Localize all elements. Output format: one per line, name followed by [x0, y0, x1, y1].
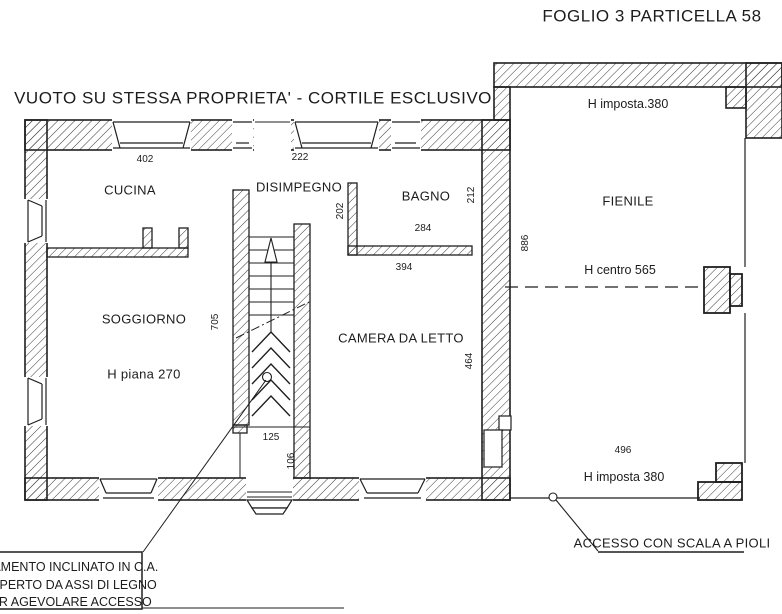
- courtyard-label: VUOTO SU STESSA PROPRIETA' - CORTILE ESC…: [14, 90, 492, 107]
- top-wall-openings: [112, 118, 421, 152]
- dim-fienile-depth: 886: [521, 235, 531, 252]
- note-line-3: PER AGEVOLARE ACCESSO: [0, 595, 152, 609]
- fienile-lines: [505, 138, 745, 498]
- dim-disimpegno-width: 222: [292, 153, 309, 163]
- sheet-title: FOGLIO 3 PARTICELLA 58: [542, 8, 761, 25]
- dim-vestibule-width: 125: [263, 433, 280, 443]
- ramp-leader-anchor: [263, 373, 272, 382]
- room-label-fienile: FIENILE: [602, 195, 653, 208]
- floor-plan-sheet: FOGLIO 3 PARTICELLA 58 VUOTO SU STESSA P…: [0, 0, 782, 614]
- note-line-2: ICOPERTO DA ASSI DI LEGNO: [0, 578, 157, 592]
- dim-camera-depth: 464: [465, 353, 475, 370]
- room-label-soggiorno: SOGGIORNO: [102, 313, 186, 326]
- access-label: ACCESSO CON SCALA A PIOLI: [574, 537, 771, 550]
- room-label-disimpegno: DISIMPEGNO: [256, 181, 342, 194]
- room-label-bagno: BAGNO: [402, 190, 450, 203]
- height-fienile-imposta-top: H imposta.380: [588, 98, 669, 111]
- access-leader-anchor: [549, 493, 557, 501]
- dim-soggiorno-depth: 705: [211, 314, 221, 331]
- entrance-step: [247, 500, 292, 514]
- dim-disimpegno-depth: 202: [336, 203, 346, 220]
- dim-fienile-width: 496: [615, 446, 632, 456]
- fienile-pillars: [698, 267, 742, 500]
- room-label-camera: CAMERA DA LETTO: [338, 332, 464, 345]
- height-fienile-imposta-bottom: H imposta 380: [584, 471, 665, 484]
- note-line-1: ASAMENTO INCLINATO IN C.A.: [0, 560, 158, 574]
- height-fienile-centro: H centro 565: [584, 264, 656, 277]
- bottom-wall-openings: [99, 477, 426, 514]
- dim-cucina-width: 402: [137, 155, 154, 165]
- dim-bagno-width: 284: [415, 224, 432, 234]
- height-soggiorno: H piana 270: [107, 368, 180, 381]
- dim-vestibule-depth: 106: [287, 453, 297, 470]
- dim-bagno-depth: 212: [467, 187, 477, 204]
- room-label-cucina: CUCINA: [104, 184, 156, 197]
- dim-camera-width: 394: [396, 263, 413, 273]
